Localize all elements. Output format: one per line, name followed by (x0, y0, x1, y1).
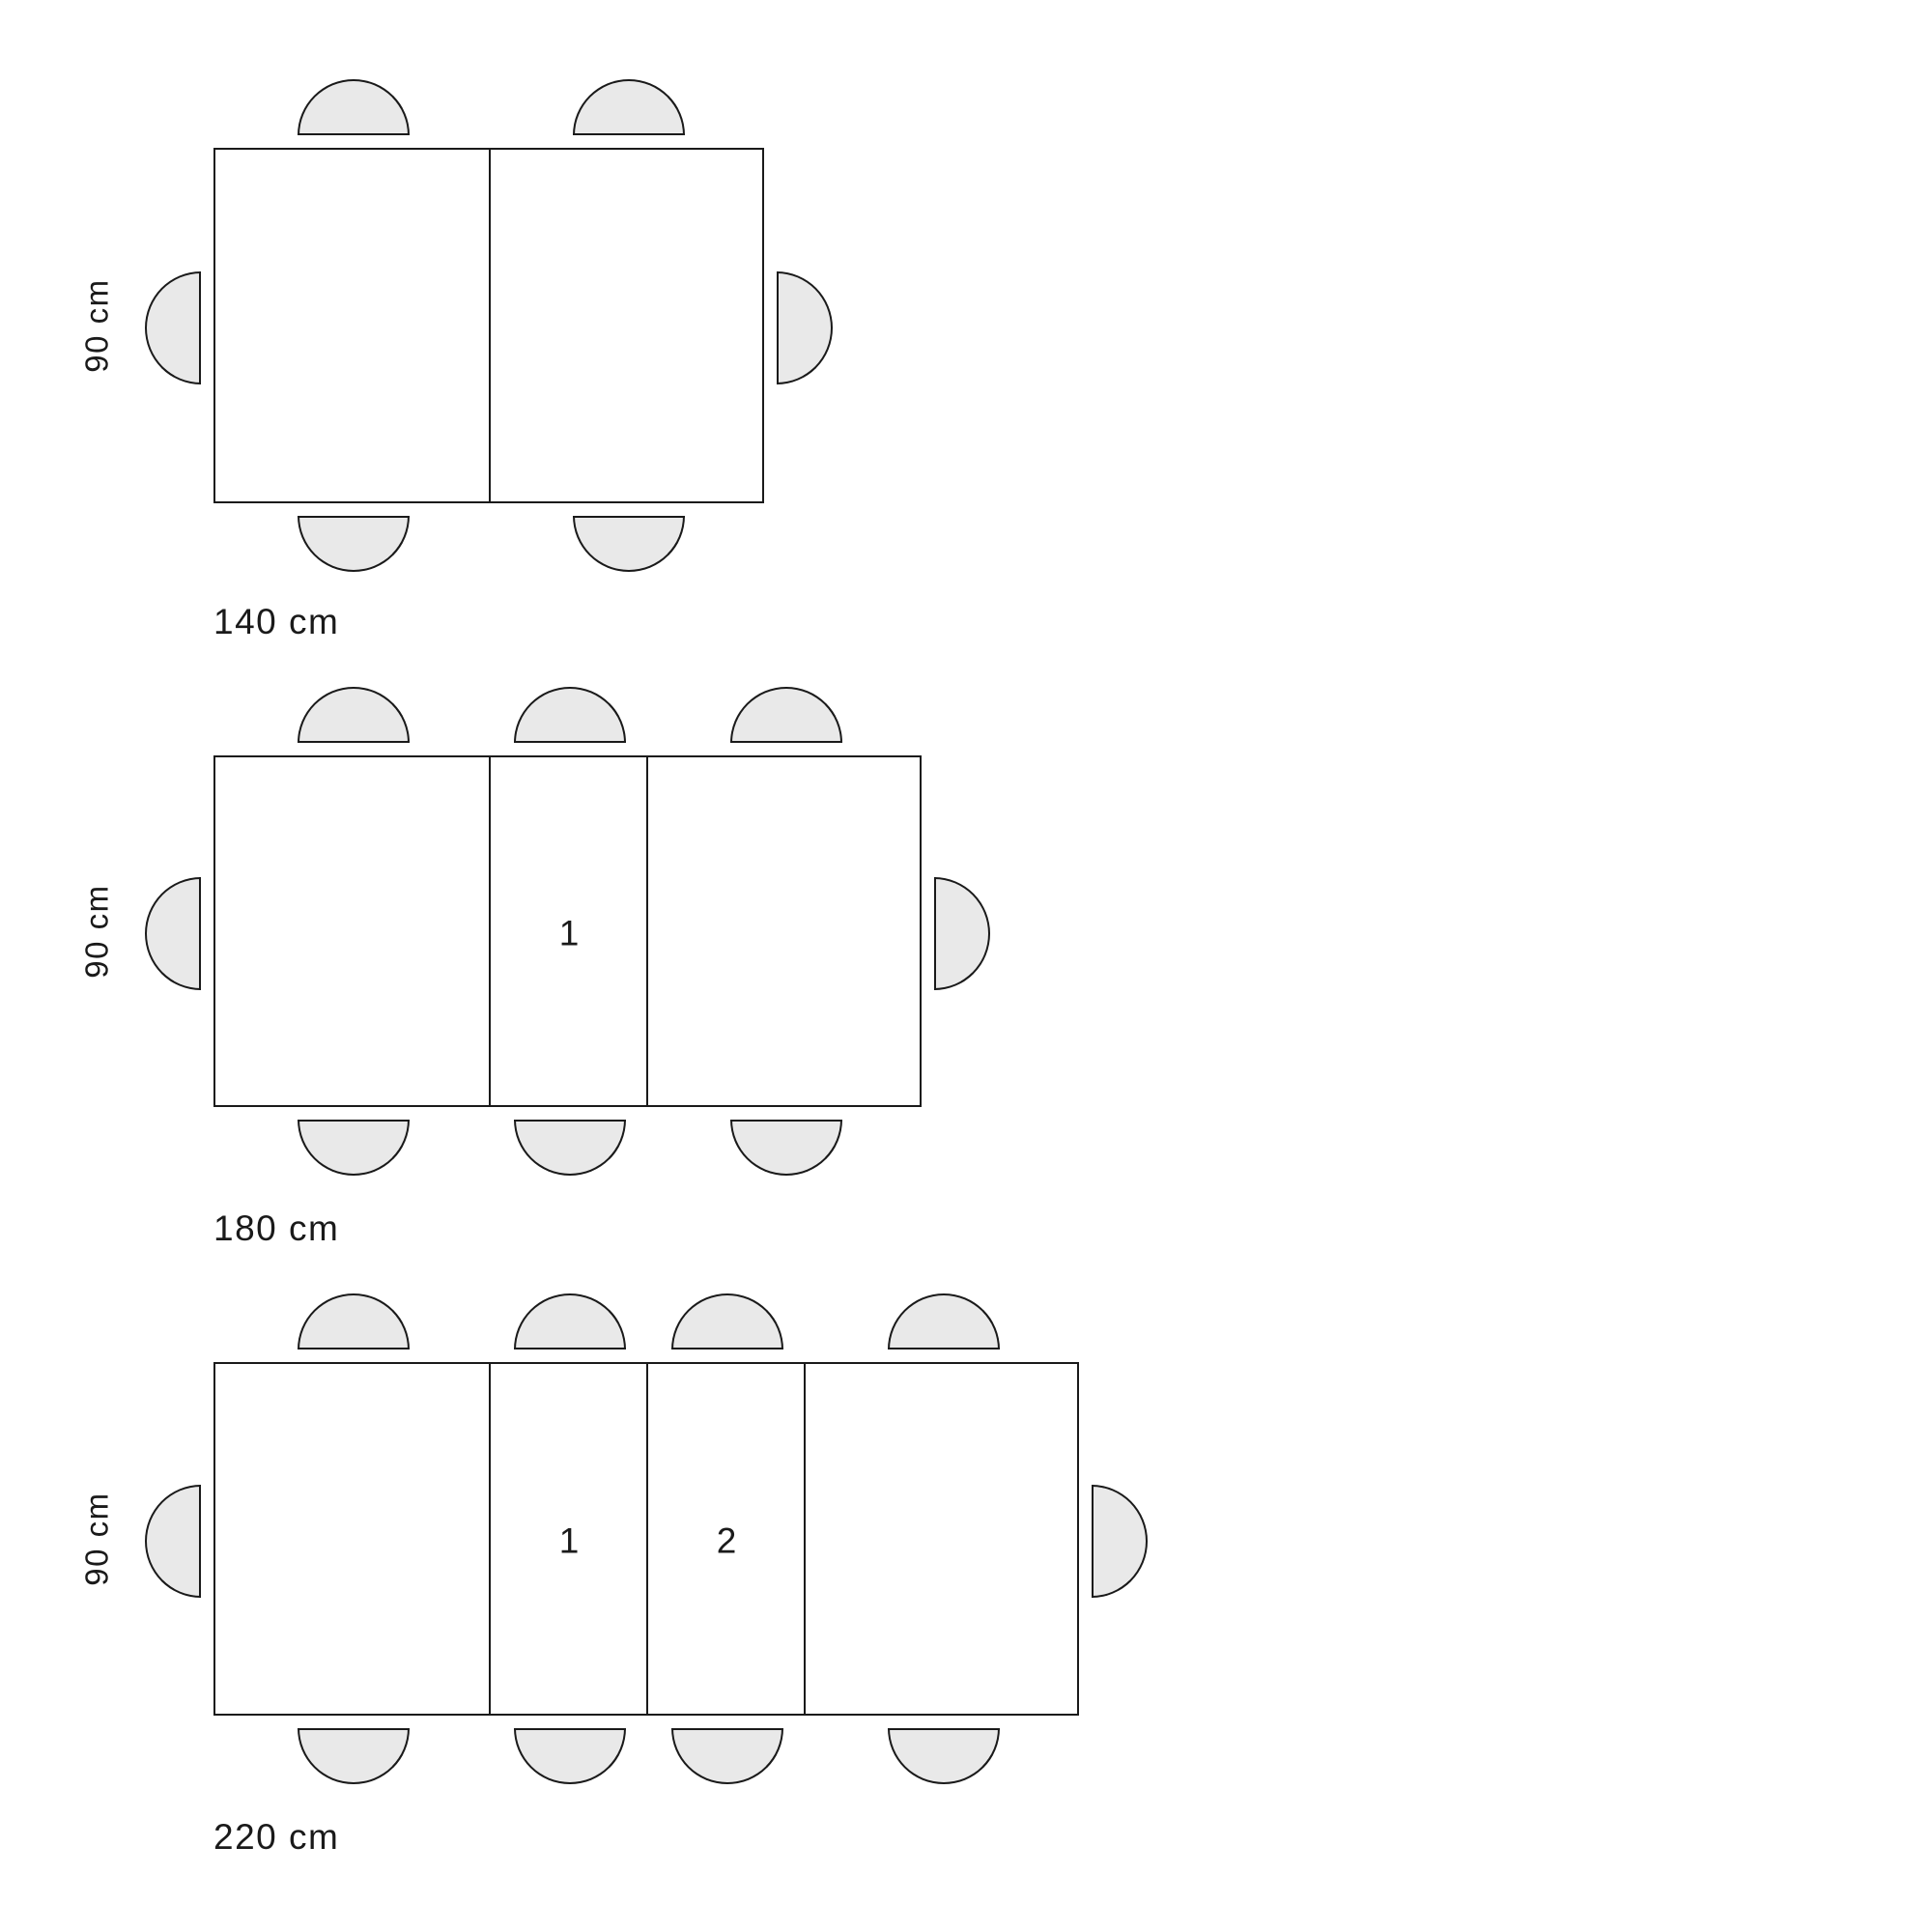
chair-top (730, 687, 842, 743)
table-divider (489, 150, 491, 501)
chair-top (298, 687, 410, 743)
chair-bottom (573, 516, 685, 572)
width-label: 90 cm (81, 1492, 113, 1585)
table-divider (646, 757, 648, 1105)
leaf-number: 1 (559, 916, 581, 952)
chair-left (145, 271, 201, 384)
chair-top (298, 79, 410, 135)
chair-right (777, 271, 833, 384)
chair-right (1092, 1485, 1148, 1598)
chair-top (514, 687, 626, 743)
chair-bottom (298, 516, 410, 572)
chair-bottom (671, 1728, 783, 1784)
chair-bottom (298, 1728, 410, 1784)
chair-top (671, 1293, 783, 1350)
table-divider (489, 757, 491, 1105)
chair-bottom (888, 1728, 1000, 1784)
chair-right (934, 877, 990, 990)
chair-top (888, 1293, 1000, 1350)
chair-top (298, 1293, 410, 1350)
width-label: 90 cm (81, 278, 113, 372)
leaf-number: 2 (717, 1523, 738, 1559)
leaf-number: 1 (559, 1523, 581, 1559)
table-divider (489, 1364, 491, 1714)
chair-bottom (298, 1120, 410, 1176)
chair-left (145, 877, 201, 990)
chair-top (514, 1293, 626, 1350)
length-label: 220 cm (213, 1819, 339, 1855)
table-outline (213, 148, 764, 503)
width-label: 90 cm (81, 884, 113, 978)
chair-left (145, 1485, 201, 1598)
chair-bottom (730, 1120, 842, 1176)
table-outline: 1 (213, 755, 922, 1107)
chair-bottom (514, 1728, 626, 1784)
size-diagram-canvas: 140 cm90 cm1180 cm90 cm12220 cm90 cm (0, 0, 1932, 1932)
chair-top (573, 79, 685, 135)
length-label: 140 cm (213, 604, 339, 639)
length-label: 180 cm (213, 1210, 339, 1246)
chair-bottom (514, 1120, 626, 1176)
table-divider (646, 1364, 648, 1714)
table-outline: 12 (213, 1362, 1079, 1716)
table-divider (804, 1364, 806, 1714)
